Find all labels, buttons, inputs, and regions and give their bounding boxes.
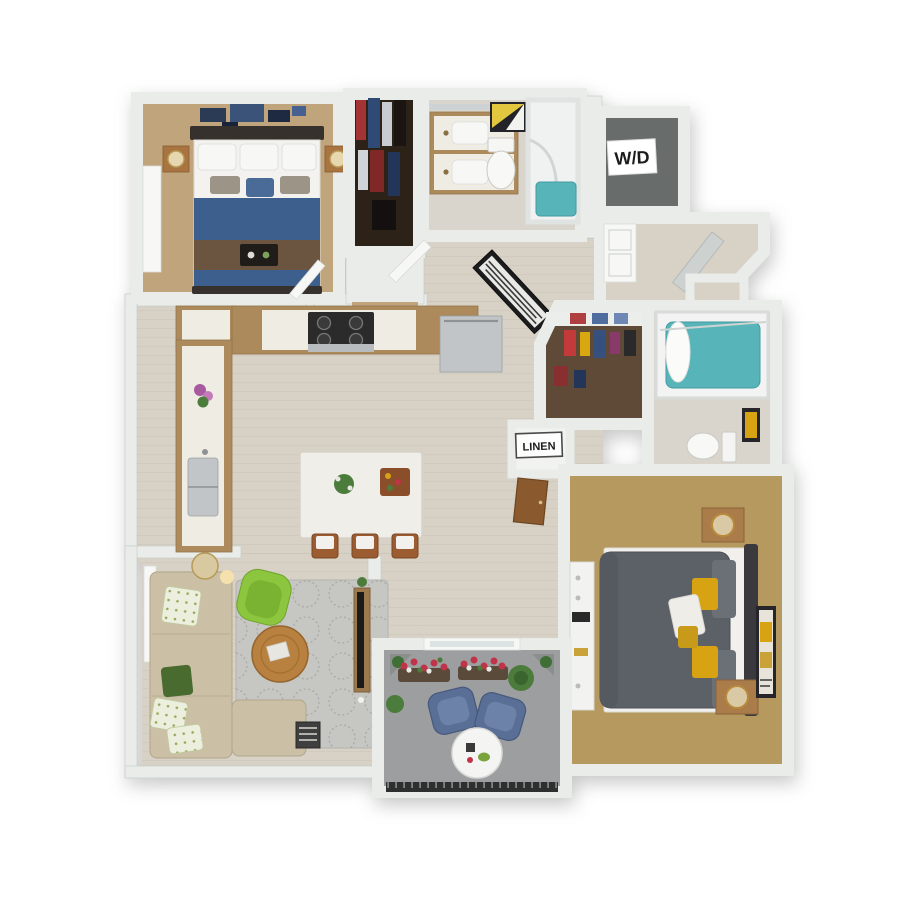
bathroom1-shower: [528, 100, 578, 222]
sofa-chaise: [232, 700, 306, 756]
kitchen-island: [300, 452, 422, 558]
balcony-shrub-small: [386, 695, 404, 713]
console-plant: [357, 577, 367, 587]
bed1-pillow: [198, 144, 236, 170]
bed2-yellow-throw: [678, 626, 698, 648]
walk-in-closet-2: [540, 306, 650, 424]
sink: [452, 122, 488, 144]
patio-table: [452, 728, 502, 778]
island-stool: [352, 534, 378, 558]
living-room: [144, 553, 388, 758]
shower-base: [536, 182, 576, 216]
floor-plan-svg: W/D: [0, 0, 900, 900]
entry-interior-door: [604, 224, 636, 282]
linen-label: LINEN: [522, 440, 555, 453]
sink: [452, 160, 488, 184]
apartment-plan: W/D: [125, 94, 788, 792]
patterned-pillow: [161, 586, 202, 627]
floor-plan-stage: W/D: [0, 0, 900, 900]
island-stool: [392, 534, 418, 558]
dresser-decor: [572, 612, 590, 622]
dresser-decor: [574, 648, 588, 656]
round-lamp: [712, 514, 734, 536]
round-lamp: [726, 686, 748, 708]
bathroom2-wall-art: [742, 408, 760, 442]
lamp: [168, 151, 184, 167]
shower-curtain: [666, 322, 690, 382]
bathroom2-toilet: [687, 432, 736, 462]
bathroom1-toilet: [487, 138, 515, 189]
bedroom2-nightstand-bottom: [716, 680, 758, 714]
bed1-pillow: [282, 144, 316, 170]
coffee-table: [252, 626, 308, 682]
balcony: [378, 638, 566, 792]
faucet: [202, 449, 208, 455]
closet2-folded-clothes: [570, 313, 628, 324]
book-stack: [296, 722, 320, 748]
kitchen-dishwasher: [440, 316, 502, 372]
bedroom2-dresser: [570, 562, 594, 710]
bed1-accent-pillow: [210, 176, 240, 194]
kitchen-stove: [308, 312, 374, 352]
bathroom1-wall-art: [490, 102, 526, 132]
green-pillow: [161, 665, 194, 698]
bed1-accent-pillow: [280, 176, 310, 194]
linen-door: [513, 478, 547, 525]
bathroom-1: [423, 94, 581, 236]
laundry-closet: W/D: [600, 112, 684, 212]
bed1-decor-tray: [240, 244, 278, 266]
kitchen-left-counter: [176, 340, 232, 552]
bed2-yellow-pillow: [692, 646, 718, 678]
bed1-pillow: [240, 144, 278, 170]
patterned-pillow: [166, 724, 203, 754]
tv-console: [354, 577, 370, 703]
bedroom2-nightstand-top: [702, 508, 744, 542]
bedroom1-nightstand-left: [163, 146, 189, 172]
tv-screen: [357, 592, 364, 688]
balcony-railing: [386, 782, 558, 792]
bed2-duvet: [600, 552, 730, 708]
bed1-blue-pillow: [246, 178, 274, 197]
bed-1: [190, 126, 324, 294]
washer-dryer-label: W/D: [614, 147, 650, 169]
bedroom1-window-drape: [143, 166, 161, 272]
bathroom2-tub: [656, 312, 768, 398]
bedroom2-wall-art: [756, 606, 776, 698]
bed1-headboard: [190, 126, 324, 140]
bedroom-2: [564, 470, 788, 770]
walk-in-closet-1: [349, 94, 419, 252]
balcony-sliding-door: [424, 638, 520, 650]
island-stool: [312, 534, 338, 558]
